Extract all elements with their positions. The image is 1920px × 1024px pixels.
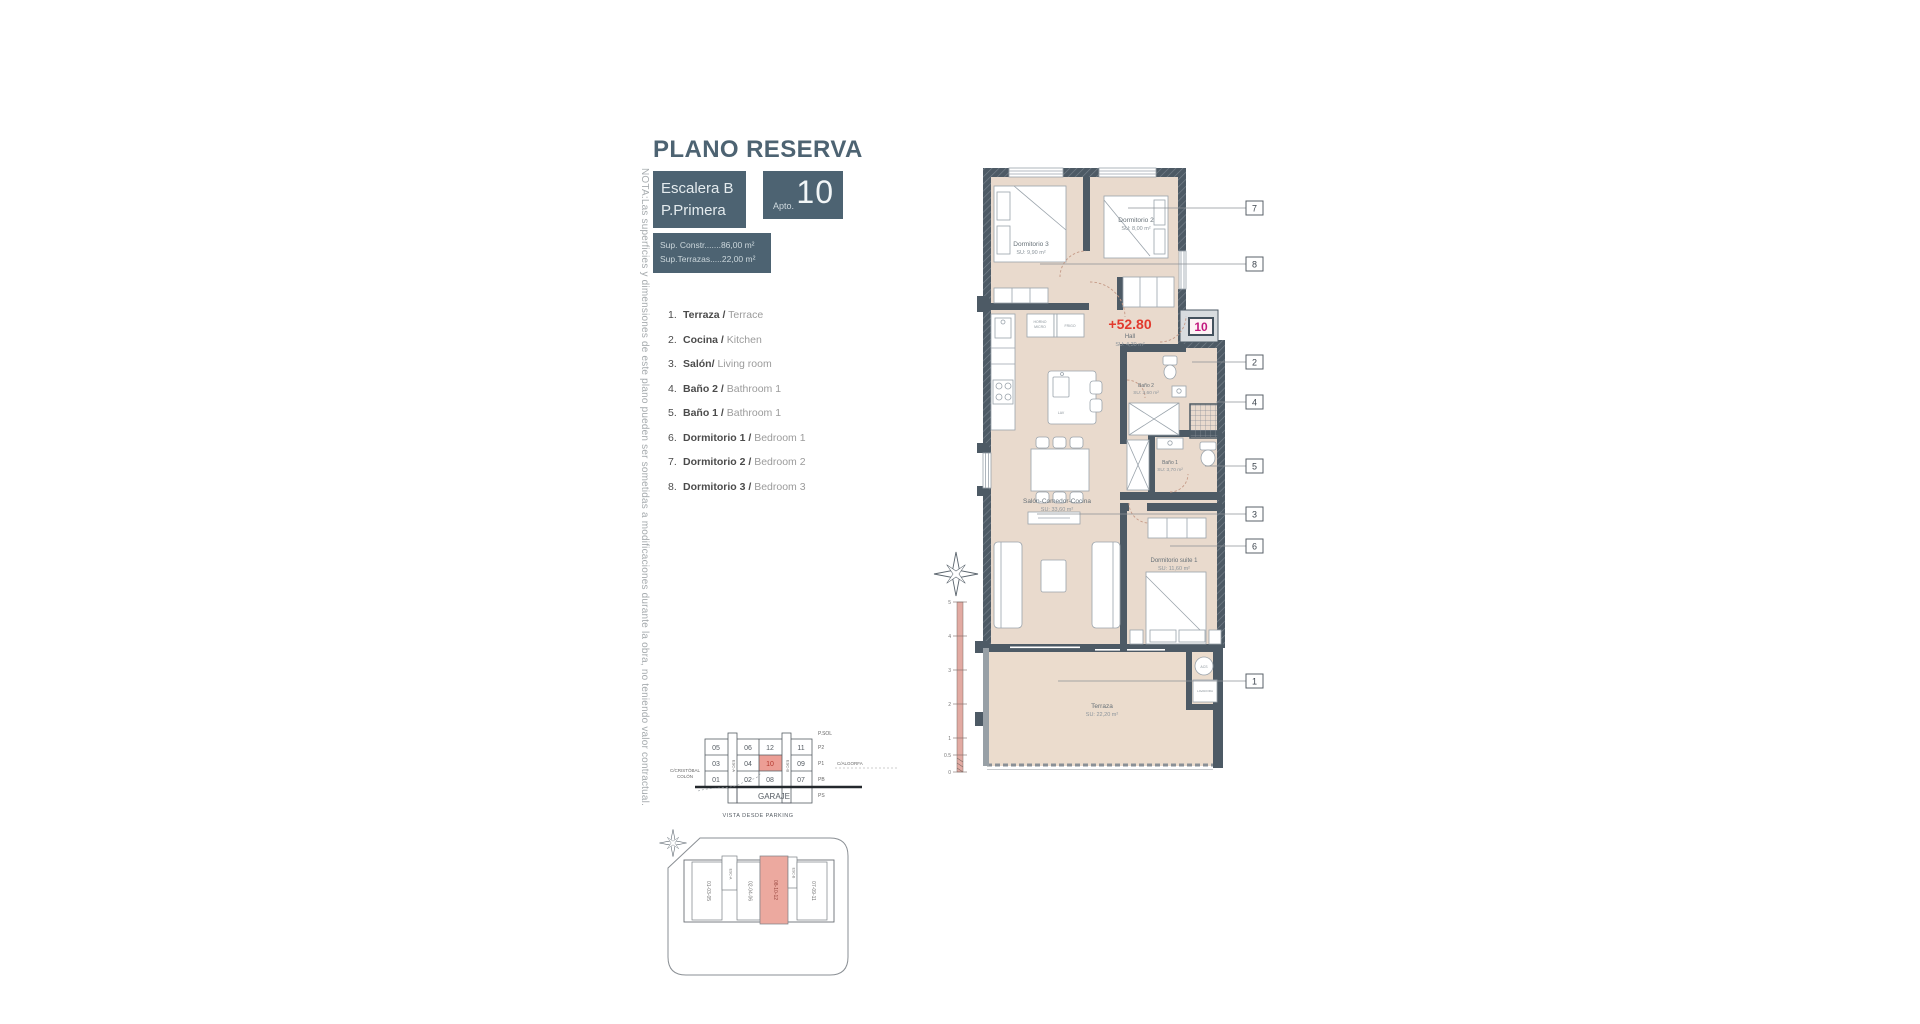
section-cell: 06 bbox=[744, 745, 752, 752]
room-name: Dormitorio 3 bbox=[1013, 241, 1049, 248]
section-cell: 05 bbox=[712, 745, 720, 752]
floor-label-p1: P1 bbox=[818, 761, 824, 767]
section-cell: 09 bbox=[797, 761, 805, 768]
room-name: Baño 2 bbox=[1138, 383, 1154, 389]
terrace-left-wall bbox=[983, 648, 989, 766]
drawings-layer: Dormitorio 3 SU: 9,90 m² Dormitorio 2 SU… bbox=[0, 0, 1920, 1024]
section-cell: 02 bbox=[744, 777, 752, 784]
scale-tick: 2 bbox=[948, 702, 951, 708]
shower-grid bbox=[1190, 404, 1218, 438]
street-left-label2: COLÓN bbox=[677, 773, 693, 779]
floor-label-ps: PS bbox=[818, 793, 825, 799]
callout-number: 7 bbox=[1252, 204, 1257, 214]
room-name: Salón-Comedor-Cocina bbox=[1023, 498, 1091, 505]
site-block-label: 01-03-05 bbox=[705, 881, 711, 901]
scale-tick: 0.5 bbox=[944, 753, 951, 759]
section-cell: 08 bbox=[766, 777, 774, 784]
room-area: SU: 4,30 m² bbox=[1115, 342, 1145, 348]
frigo-label: FRIGO bbox=[1064, 324, 1075, 328]
esc-a-label: ESC-A bbox=[732, 760, 737, 773]
site-block-label: 02-04-06 bbox=[747, 881, 753, 901]
section-cell: 07 bbox=[797, 777, 805, 784]
page: PLANO RESERVA Escalera B P.Primera Apto.… bbox=[0, 0, 1920, 1024]
site-block-label: ESC-A bbox=[729, 869, 733, 880]
room-name: Baño 1 bbox=[1162, 460, 1178, 466]
room-name: Hall bbox=[1125, 334, 1135, 340]
callout-number: 4 bbox=[1252, 398, 1257, 408]
callout-number: 2 bbox=[1252, 358, 1257, 368]
scale-tick: 4 bbox=[948, 634, 951, 640]
compass-icon bbox=[934, 552, 978, 596]
site-block-label: ESC-B bbox=[792, 868, 796, 879]
room-name: Dormitorio suite 1 bbox=[1150, 558, 1198, 564]
site-compass-icon bbox=[659, 829, 686, 856]
room-name: Dormitorio 2 bbox=[1118, 217, 1154, 224]
section-cell: 04 bbox=[744, 761, 752, 768]
site-block-label-highlight: 08-10-12 bbox=[772, 880, 778, 900]
room-name: Terraza bbox=[1091, 703, 1113, 710]
scale-tick: 5 bbox=[948, 600, 951, 606]
lav-label: LAV bbox=[1058, 411, 1065, 415]
section-cell-highlight: 10 bbox=[766, 761, 774, 768]
callout-number: 3 bbox=[1252, 510, 1257, 520]
callout-number: 1 bbox=[1252, 677, 1257, 687]
room-area: SU: 3,60 m² bbox=[1133, 390, 1159, 396]
level-value: +52.80 bbox=[1108, 316, 1151, 332]
scale-tick: 1 bbox=[948, 736, 951, 742]
scale-tick: 3 bbox=[948, 668, 951, 674]
floor-label-p2: P2 bbox=[818, 745, 824, 751]
acs-label: ACS bbox=[1200, 665, 1208, 669]
section-cell: 12 bbox=[766, 745, 774, 752]
section-cell: 11 bbox=[797, 745, 804, 752]
horno-label2: MICRO bbox=[1034, 325, 1046, 329]
site-block-label: 07-09-11 bbox=[810, 881, 816, 901]
section-cell: 03 bbox=[712, 761, 720, 768]
floor-label-pb: PB bbox=[818, 777, 825, 783]
scale-tick: 0 bbox=[948, 770, 951, 776]
callout-number: 6 bbox=[1252, 542, 1257, 552]
building-section: 05 06 12 11 03 04 10 09 01 02 08 07 GARA… bbox=[670, 731, 898, 819]
unit-badge-number: 10 bbox=[1194, 320, 1208, 334]
callout-number: 8 bbox=[1252, 260, 1257, 270]
garaje-label: GARAJE bbox=[758, 792, 790, 801]
street-right-label: C/ALGORFA bbox=[837, 761, 863, 766]
esc-b-label: ESC-B bbox=[786, 760, 791, 773]
callouts: 7 8 2 4 5 3 6 1 bbox=[1246, 201, 1263, 688]
room-area: SU: 11,60 m² bbox=[1158, 566, 1190, 572]
scale-bar: 5 4 3 2 1 0.5 0 bbox=[944, 600, 967, 776]
room-area: SU: 22,20 m² bbox=[1086, 712, 1119, 718]
room-area: SU: 3,70 m² bbox=[1157, 467, 1183, 473]
section-cell: 01 bbox=[712, 777, 720, 784]
site-plan: 01-03-05 ESC-A 02-04-06 08-10-12 ESC-B 0… bbox=[659, 829, 848, 975]
suite-door-gap bbox=[1129, 503, 1147, 511]
lavadora-label: LAVADORA bbox=[1197, 689, 1213, 693]
street-left-label: C/CRISTÓBAL bbox=[670, 767, 701, 773]
room-area: SU: 9,90 m² bbox=[1016, 250, 1046, 256]
psol-label: P.SOL bbox=[818, 731, 832, 737]
callout-number: 5 bbox=[1252, 462, 1257, 472]
section-caption: VISTA DESDE PARKING bbox=[722, 813, 793, 819]
horno-label: HORNO bbox=[1033, 320, 1046, 324]
floor-plan: Dormitorio 3 SU: 9,90 m² Dormitorio 2 SU… bbox=[934, 168, 1263, 776]
unit-badge: 10 bbox=[1189, 318, 1213, 335]
room-area: SU: 33,60 m² bbox=[1041, 507, 1074, 513]
room-area: SU: 8,00 m² bbox=[1121, 226, 1151, 232]
